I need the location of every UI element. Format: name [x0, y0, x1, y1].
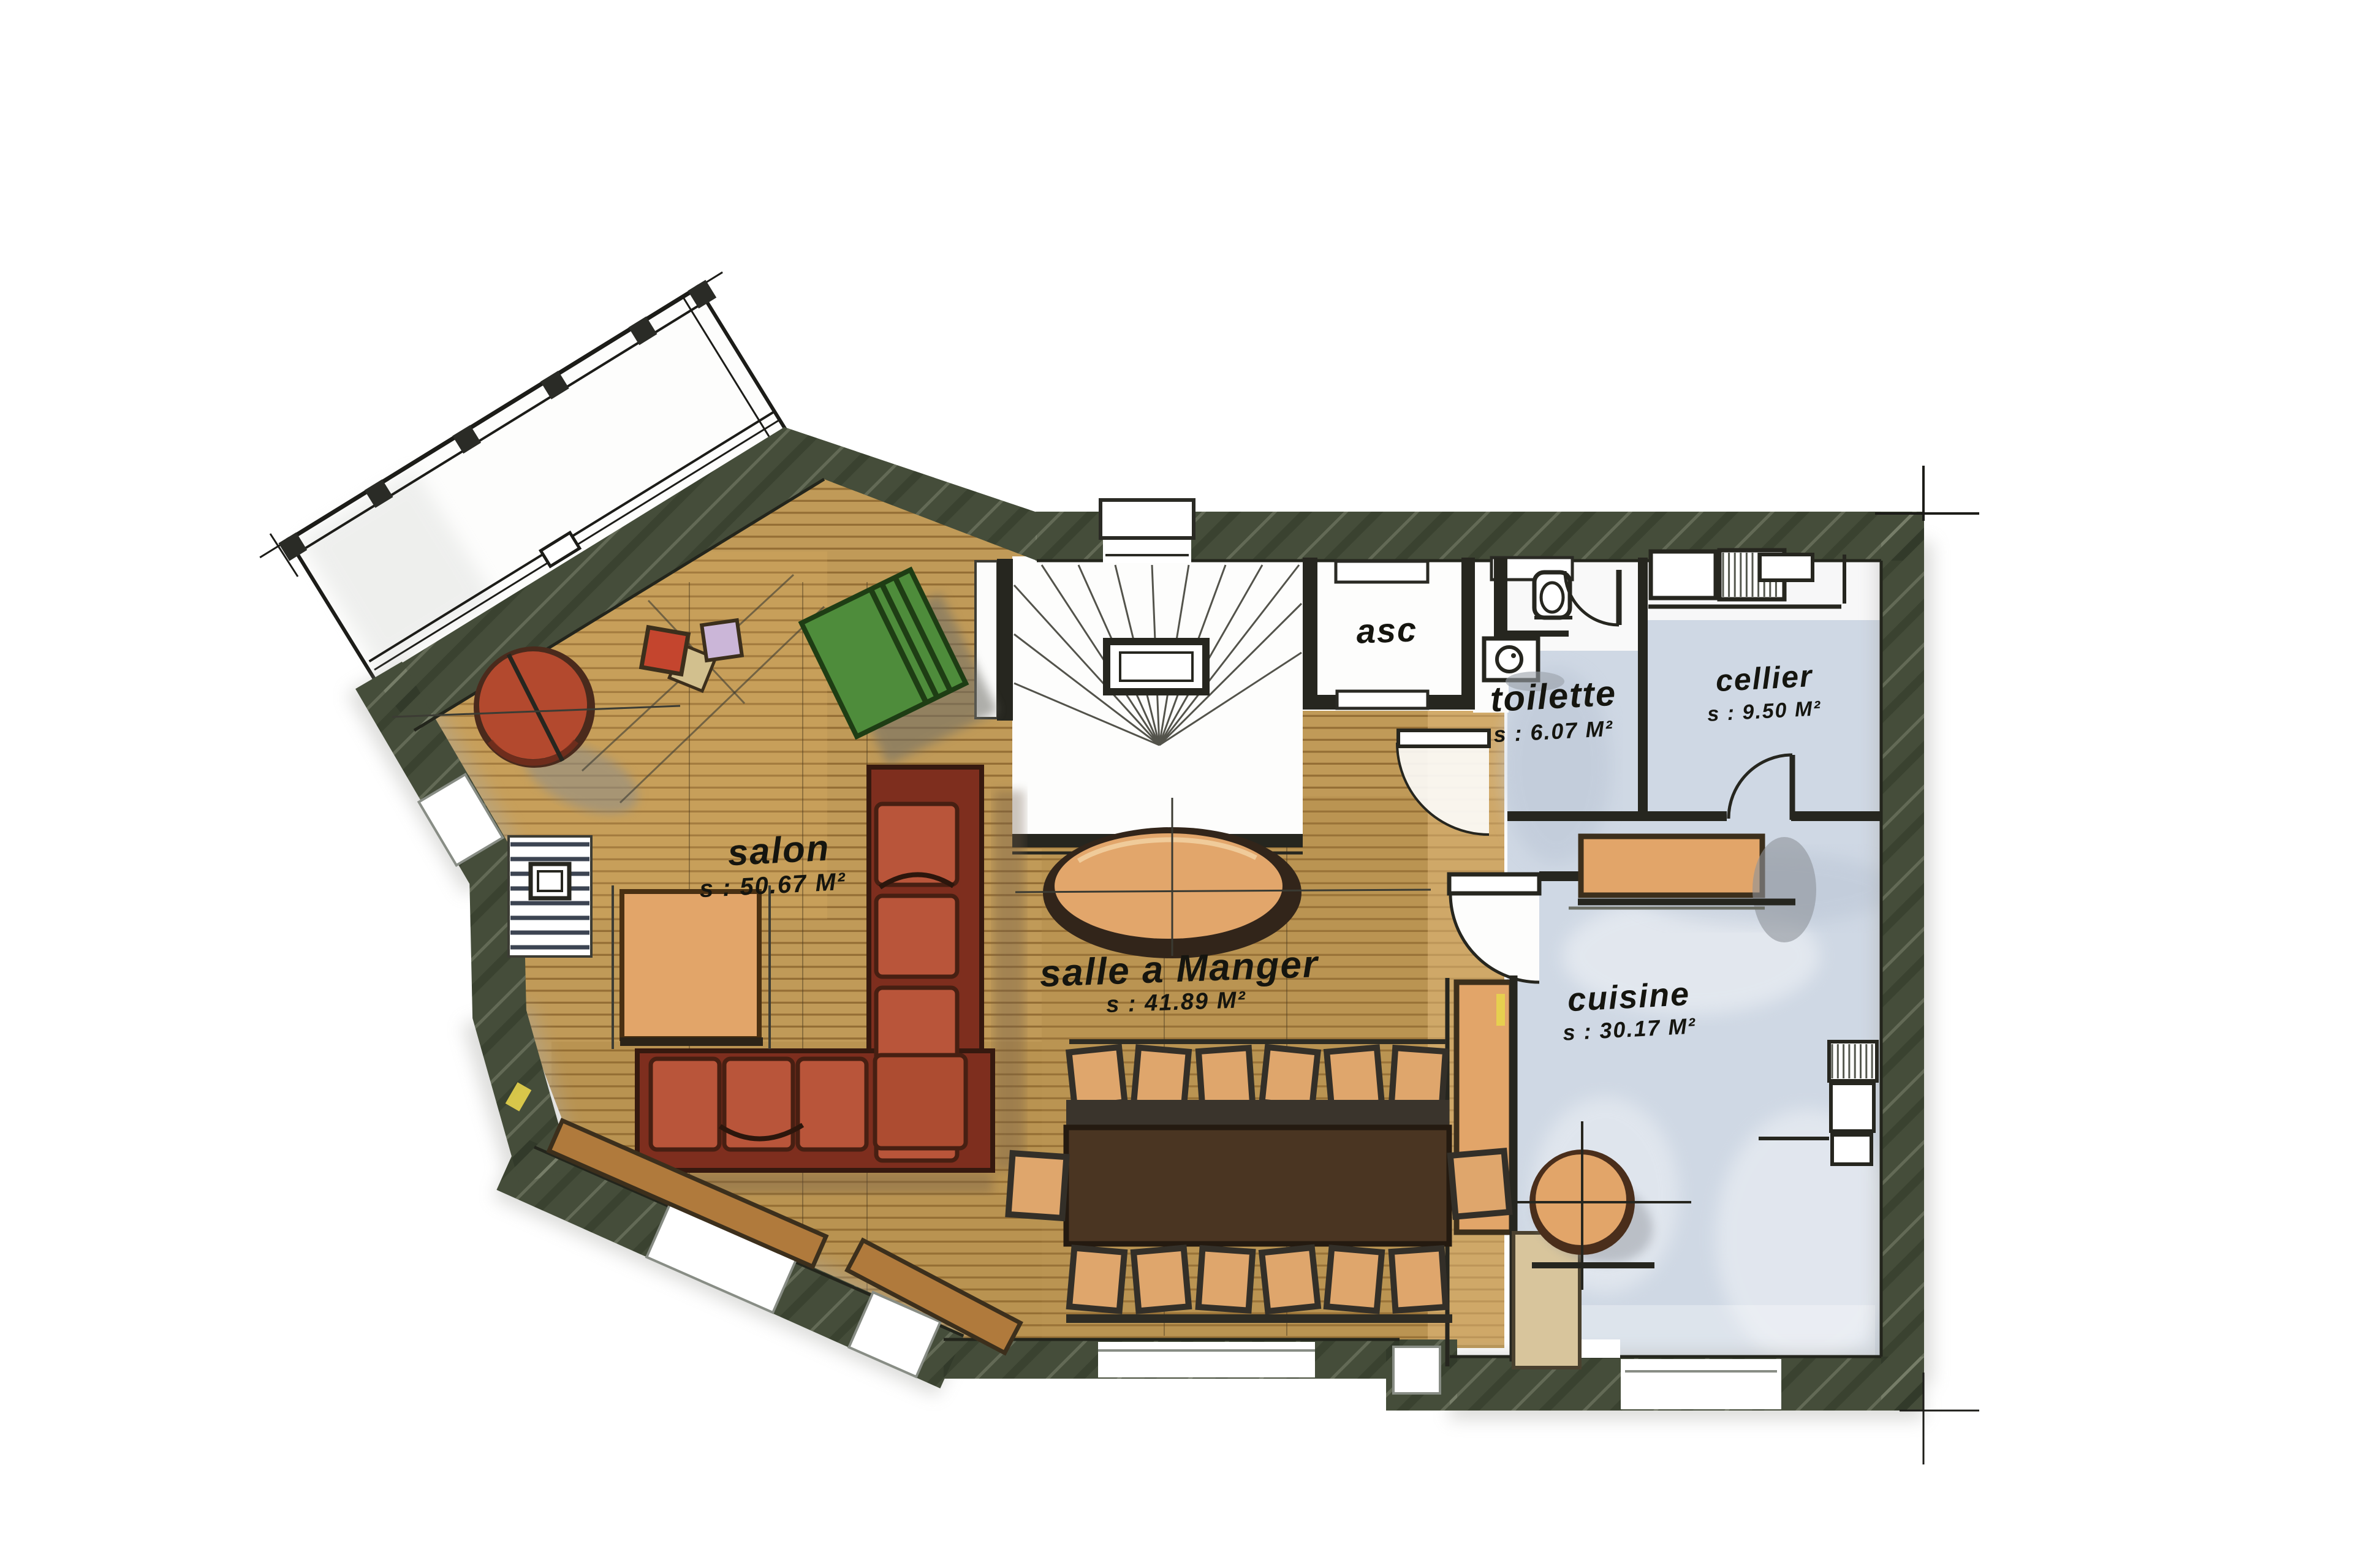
svg-text:asc: asc — [1356, 610, 1419, 650]
svg-text:salon: salon — [727, 827, 831, 874]
svg-text:cuisine: cuisine — [1567, 975, 1691, 1018]
svg-text:s : 41.89 M²: s : 41.89 M² — [1105, 987, 1246, 1018]
svg-text:toilette: toilette — [1489, 673, 1617, 720]
svg-text:cellier: cellier — [1715, 659, 1814, 698]
